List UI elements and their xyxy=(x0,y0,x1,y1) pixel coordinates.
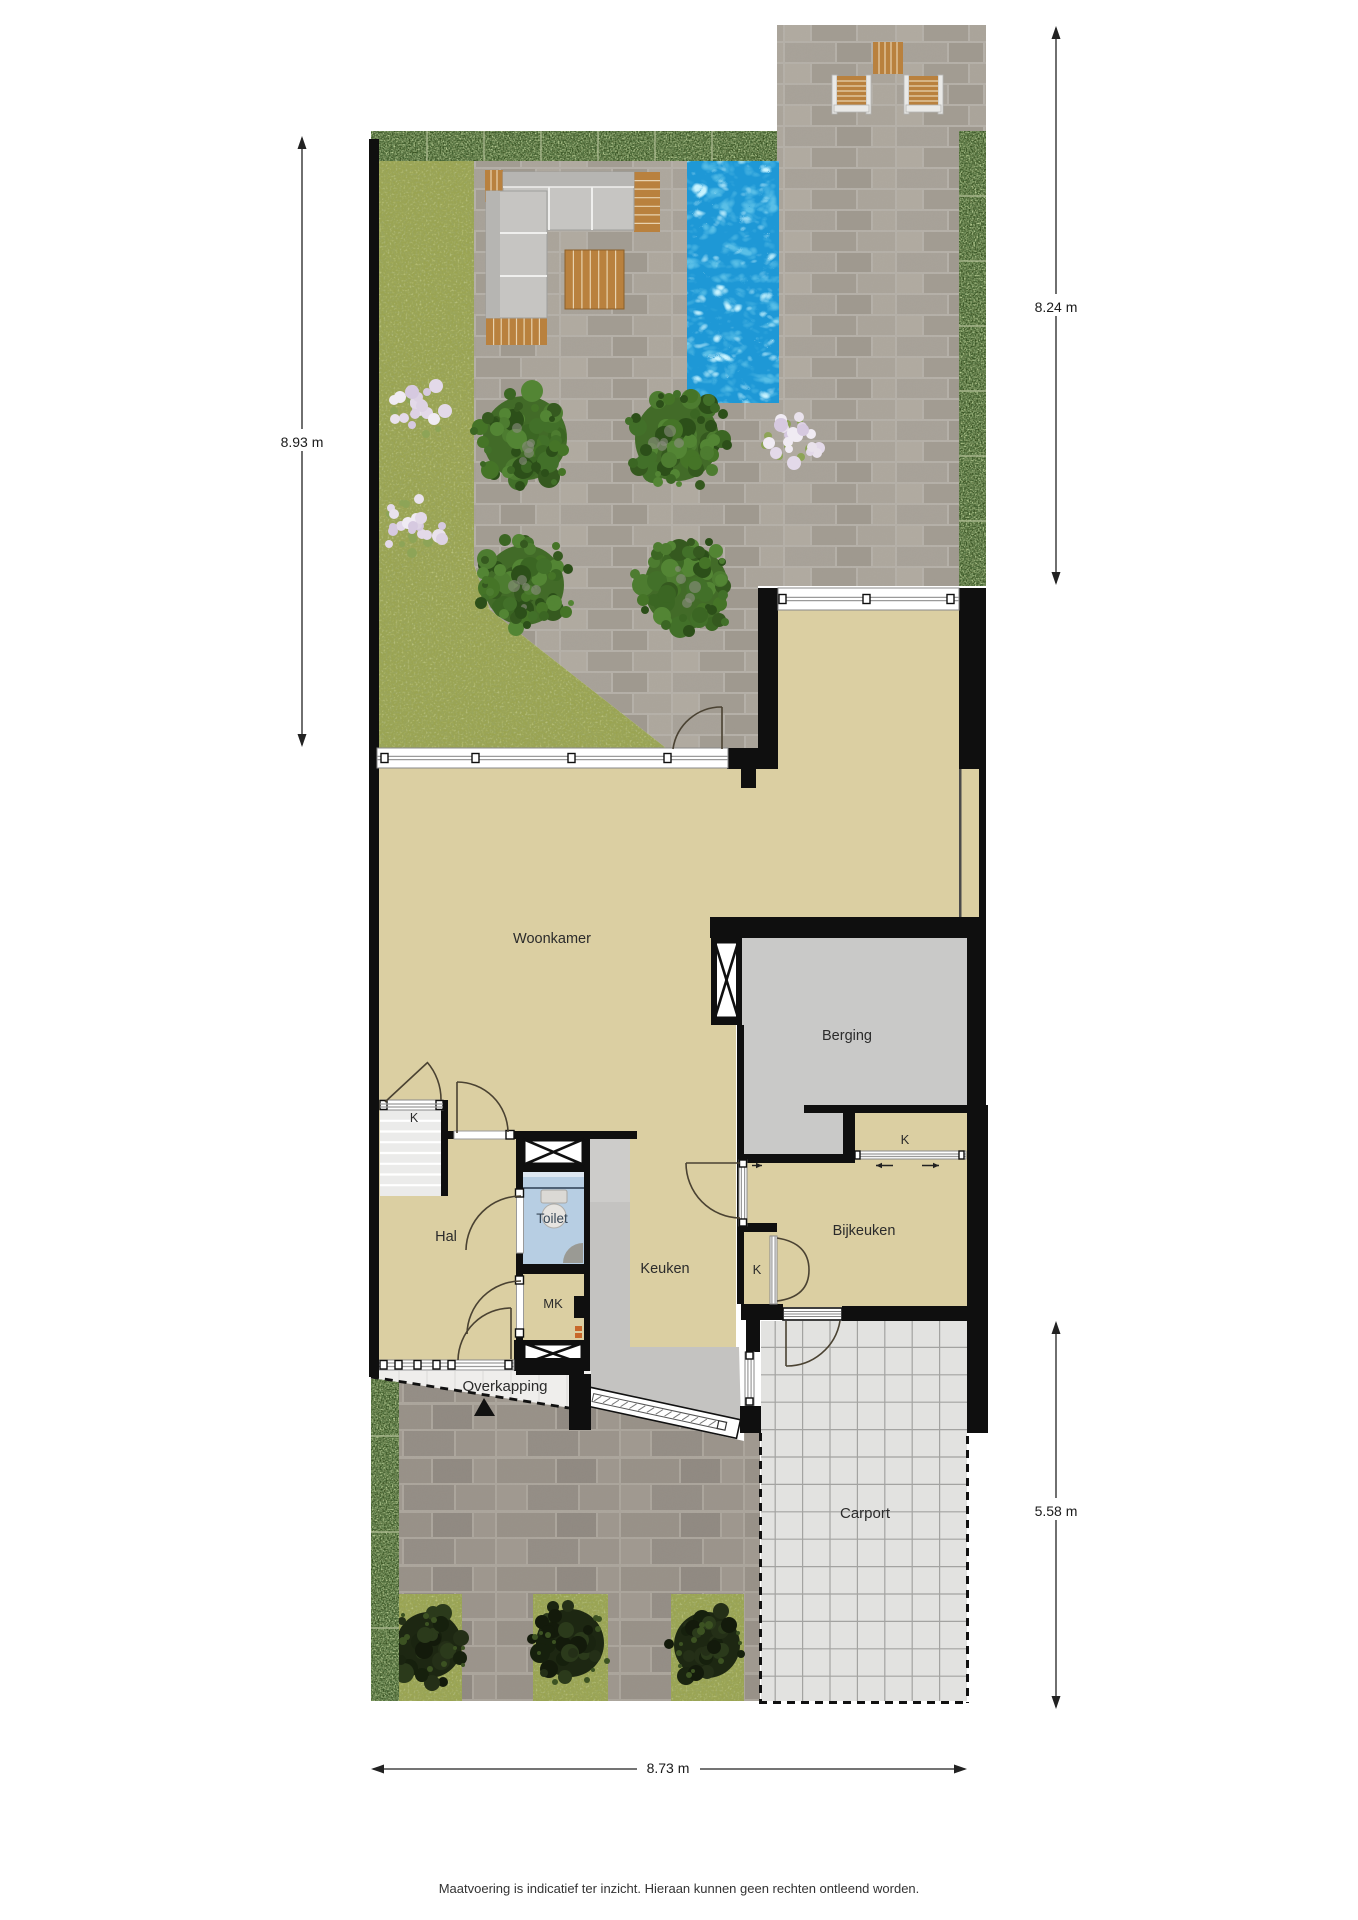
svg-text:Keuken: Keuken xyxy=(640,1261,689,1277)
svg-text:8.24 m: 8.24 m xyxy=(1035,299,1078,315)
svg-text:Hal: Hal xyxy=(435,1229,457,1245)
svg-text:K: K xyxy=(410,1111,419,1125)
svg-text:Woonkamer: Woonkamer xyxy=(513,931,591,947)
svg-text:8.73 m: 8.73 m xyxy=(647,1760,690,1776)
svg-text:Maatvoering is indicatief ter: Maatvoering is indicatief ter inzicht. H… xyxy=(439,1881,920,1896)
svg-text:Berging: Berging xyxy=(822,1028,872,1044)
svg-text:K: K xyxy=(753,1262,762,1277)
svg-text:8.93 m: 8.93 m xyxy=(281,434,324,450)
svg-text:Bijkeuken: Bijkeuken xyxy=(833,1223,896,1239)
svg-text:5.58 m: 5.58 m xyxy=(1035,1503,1078,1519)
svg-text:K: K xyxy=(901,1132,910,1147)
svg-text:Toilet: Toilet xyxy=(536,1211,568,1226)
svg-text:Carport: Carport xyxy=(840,1505,891,1522)
svg-text:MK: MK xyxy=(543,1296,563,1311)
svg-text:Overkapping: Overkapping xyxy=(462,1378,547,1395)
